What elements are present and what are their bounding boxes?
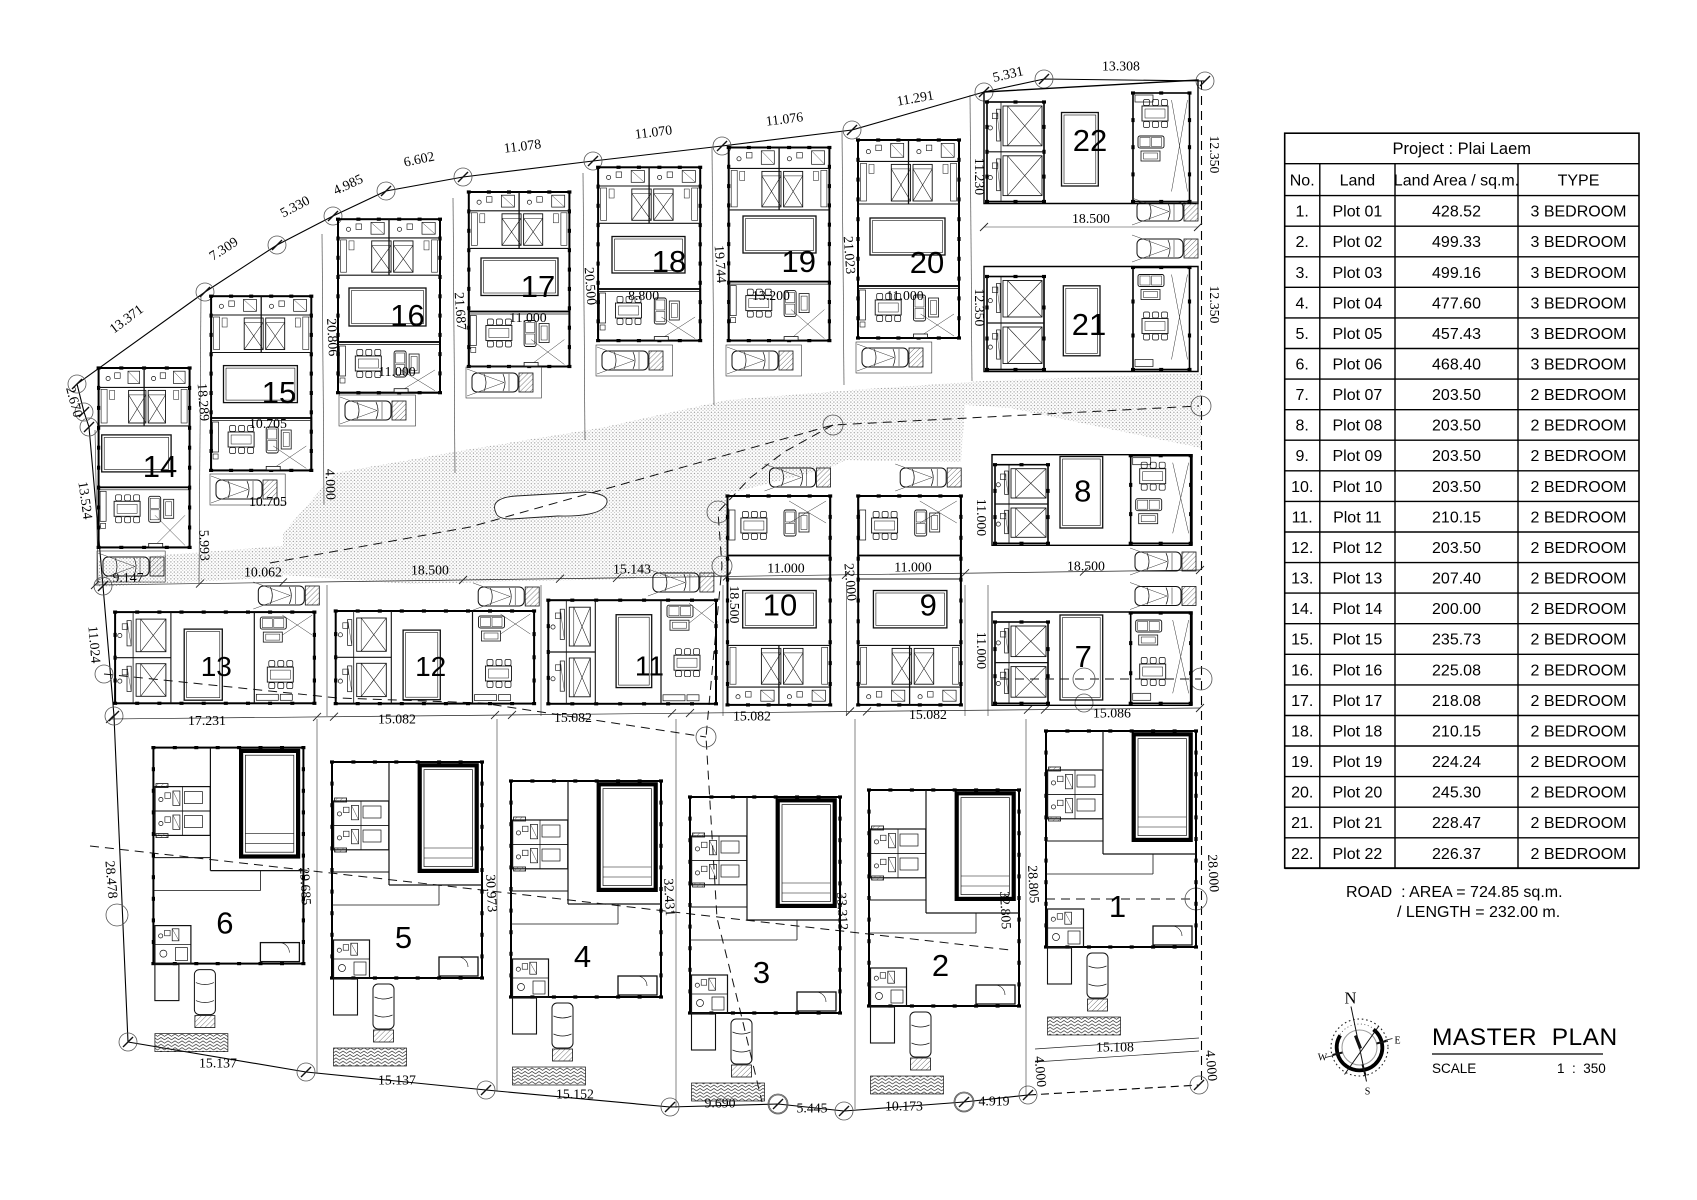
svg-text:200.00: 200.00	[1432, 601, 1481, 618]
svg-text:19.: 19.	[1291, 754, 1313, 771]
svg-text:428.52: 428.52	[1432, 204, 1481, 221]
svg-text:226.37: 226.37	[1432, 846, 1481, 863]
svg-text:2 BEDROOM: 2 BEDROOM	[1530, 601, 1626, 618]
svg-text:11.000: 11.000	[974, 632, 989, 670]
svg-text:21: 21	[1072, 307, 1106, 342]
svg-text:207.40: 207.40	[1432, 571, 1481, 588]
svg-text:11.000: 11.000	[767, 561, 805, 576]
svg-text:32.805: 32.805	[997, 891, 1014, 930]
svg-text:18: 18	[652, 244, 686, 279]
svg-text:20.500: 20.500	[582, 267, 600, 306]
svg-text:18.289: 18.289	[195, 383, 213, 422]
svg-text:3 BEDROOM: 3 BEDROOM	[1530, 326, 1626, 343]
svg-text:Plot 14: Plot 14	[1332, 601, 1382, 618]
svg-text:6: 6	[216, 906, 233, 941]
svg-text:Plot 15: Plot 15	[1332, 632, 1382, 649]
svg-text:22: 22	[1073, 123, 1107, 158]
svg-text:20: 20	[910, 245, 944, 280]
svg-text:12.350: 12.350	[972, 289, 987, 327]
svg-text:2 BEDROOM: 2 BEDROOM	[1530, 571, 1626, 588]
svg-text:477.60: 477.60	[1432, 295, 1481, 312]
svg-text:21.687: 21.687	[452, 292, 470, 331]
svg-text:Plot 01: Plot 01	[1332, 204, 1382, 221]
svg-text:3 BEDROOM: 3 BEDROOM	[1530, 295, 1626, 312]
svg-text:Plot 03: Plot 03	[1332, 265, 1382, 282]
svg-text:/ LENGTH = 232.00 m.: / LENGTH = 232.00 m.	[1397, 904, 1560, 921]
svg-text:W: W	[1318, 1053, 1328, 1064]
svg-text:E: E	[1394, 1036, 1400, 1047]
svg-text:Plot 02: Plot 02	[1332, 234, 1382, 251]
svg-text:Plot 11: Plot 11	[1333, 509, 1382, 526]
svg-text:203.50: 203.50	[1432, 479, 1481, 496]
svg-text:17.: 17.	[1291, 693, 1313, 710]
svg-text:9.147: 9.147	[112, 570, 143, 585]
svg-text:8.: 8.	[1296, 418, 1309, 435]
svg-text:5.445: 5.445	[796, 1101, 827, 1116]
svg-text:2 BEDROOM: 2 BEDROOM	[1530, 693, 1626, 710]
svg-text:2 BEDROOM: 2 BEDROOM	[1530, 785, 1626, 802]
svg-text:30.973: 30.973	[483, 874, 500, 913]
svg-text:3 BEDROOM: 3 BEDROOM	[1530, 357, 1626, 374]
svg-text:Plot 17: Plot 17	[1332, 693, 1382, 710]
svg-text:29.685: 29.685	[297, 867, 314, 906]
svg-text:17.231: 17.231	[188, 713, 226, 728]
svg-text:4.: 4.	[1296, 295, 1309, 312]
svg-text:ROAD : AREA = 724.85 sq.m.: ROAD : AREA = 724.85 sq.m.	[1346, 884, 1563, 901]
svg-text:Plot 05: Plot 05	[1332, 326, 1382, 343]
svg-text:2 BEDROOM: 2 BEDROOM	[1530, 540, 1626, 557]
svg-text:2 BEDROOM: 2 BEDROOM	[1530, 509, 1626, 526]
svg-text:11.000: 11.000	[509, 310, 547, 325]
svg-text:10.705: 10.705	[249, 494, 287, 509]
svg-text:8.800: 8.800	[628, 288, 659, 303]
svg-text:13.308: 13.308	[1102, 59, 1140, 74]
svg-text:16.: 16.	[1291, 662, 1313, 679]
svg-text:8: 8	[1074, 474, 1091, 509]
svg-text:Plot 22: Plot 22	[1332, 846, 1382, 863]
svg-text:Plot 07: Plot 07	[1332, 387, 1382, 404]
svg-text:10.173: 10.173	[885, 1099, 923, 1114]
svg-text:12.350: 12.350	[1207, 136, 1222, 174]
svg-text:210.15: 210.15	[1432, 509, 1481, 526]
svg-text:203.50: 203.50	[1432, 448, 1481, 465]
svg-text:2 BEDROOM: 2 BEDROOM	[1530, 662, 1626, 679]
svg-text:22.: 22.	[1291, 846, 1313, 863]
svg-text:5.993: 5.993	[196, 530, 212, 562]
svg-text:Plot 16: Plot 16	[1332, 662, 1382, 679]
svg-text:10.: 10.	[1291, 479, 1313, 496]
svg-text:2 BEDROOM: 2 BEDROOM	[1530, 815, 1626, 832]
svg-text:S: S	[1365, 1087, 1371, 1098]
svg-text:No.: No.	[1290, 173, 1315, 190]
svg-text:Land Area / sq.m.: Land Area / sq.m.	[1394, 173, 1519, 190]
svg-text:18.500: 18.500	[1067, 559, 1105, 574]
svg-text:7: 7	[1075, 639, 1092, 674]
svg-text:4.000: 4.000	[1203, 1049, 1221, 1081]
svg-text:2: 2	[932, 948, 949, 983]
svg-text:TYPE: TYPE	[1558, 173, 1600, 190]
svg-text:15.108: 15.108	[1096, 1040, 1134, 1055]
svg-text:2.: 2.	[1296, 234, 1309, 251]
svg-text:3: 3	[753, 955, 770, 990]
svg-text:13.: 13.	[1291, 571, 1313, 588]
svg-text:15.082: 15.082	[909, 707, 947, 722]
svg-text:11.000: 11.000	[974, 499, 989, 537]
svg-text:18.: 18.	[1291, 724, 1313, 741]
svg-text:10: 10	[763, 588, 797, 623]
svg-text:17: 17	[521, 269, 555, 304]
svg-text:15: 15	[262, 375, 296, 410]
svg-text:Plot 09: Plot 09	[1332, 448, 1382, 465]
svg-text:5.: 5.	[1296, 326, 1309, 343]
svg-text:Plot 19: Plot 19	[1332, 754, 1382, 771]
svg-text:15.: 15.	[1291, 632, 1313, 649]
svg-text:Plot 08: Plot 08	[1332, 418, 1382, 435]
svg-text:16: 16	[390, 298, 424, 333]
svg-text:Plot 04: Plot 04	[1332, 295, 1382, 312]
svg-text:N: N	[1345, 989, 1357, 1008]
svg-text:1 : 350: 1 : 350	[1557, 1061, 1606, 1076]
svg-text:2 BEDROOM: 2 BEDROOM	[1530, 448, 1626, 465]
svg-text:2 BEDROOM: 2 BEDROOM	[1530, 846, 1626, 863]
svg-text:2 BEDROOM: 2 BEDROOM	[1530, 387, 1626, 404]
svg-text:225.08: 225.08	[1432, 662, 1481, 679]
svg-text:4.919: 4.919	[978, 1094, 1009, 1109]
svg-text:1.: 1.	[1296, 204, 1309, 221]
svg-text:15.086: 15.086	[1093, 706, 1131, 721]
svg-text:18.500: 18.500	[1072, 211, 1110, 226]
svg-text:3 BEDROOM: 3 BEDROOM	[1530, 234, 1626, 251]
svg-text:MASTER PLAN: MASTER PLAN	[1432, 1024, 1618, 1051]
svg-text:SCALE: SCALE	[1432, 1061, 1476, 1076]
svg-text:15.137: 15.137	[378, 1073, 416, 1088]
svg-text:12.: 12.	[1291, 540, 1313, 557]
svg-text:14: 14	[143, 449, 177, 484]
svg-text:Plot 13: Plot 13	[1332, 571, 1382, 588]
svg-text:11.230: 11.230	[972, 158, 987, 196]
svg-text:2 BEDROOM: 2 BEDROOM	[1530, 724, 1626, 741]
svg-text:9: 9	[920, 588, 937, 623]
svg-text:Plot 20: Plot 20	[1332, 785, 1382, 802]
svg-text:28.000: 28.000	[1205, 854, 1222, 893]
svg-text:6.: 6.	[1296, 357, 1309, 374]
svg-text:9.: 9.	[1296, 448, 1309, 465]
svg-text:4.000: 4.000	[1032, 1055, 1050, 1087]
svg-text:14.: 14.	[1291, 601, 1313, 618]
svg-text:18.500: 18.500	[727, 586, 742, 624]
svg-text:203.50: 203.50	[1432, 418, 1481, 435]
svg-text:11.000: 11.000	[378, 364, 416, 379]
svg-text:203.50: 203.50	[1432, 540, 1481, 557]
svg-text:15.082: 15.082	[378, 712, 416, 727]
svg-text:499.16: 499.16	[1432, 265, 1481, 282]
svg-text:499.33: 499.33	[1432, 234, 1481, 251]
svg-text:11: 11	[635, 651, 664, 682]
svg-text:Project : Plai Laem: Project : Plai Laem	[1393, 140, 1531, 158]
svg-text:7.: 7.	[1296, 387, 1309, 404]
svg-text:20.: 20.	[1291, 785, 1313, 802]
svg-text:210.15: 210.15	[1432, 724, 1481, 741]
svg-text:Land: Land	[1340, 173, 1376, 190]
svg-text:3.: 3.	[1296, 265, 1309, 282]
svg-text:Plot 12: Plot 12	[1332, 540, 1382, 557]
svg-text:Plot 18: Plot 18	[1332, 724, 1382, 741]
svg-text:4.000: 4.000	[322, 469, 338, 501]
svg-text:203.50: 203.50	[1432, 387, 1481, 404]
svg-text:18.500: 18.500	[411, 563, 449, 578]
svg-text:19.744: 19.744	[712, 245, 730, 284]
svg-text:28.805: 28.805	[1025, 865, 1042, 904]
svg-text:21.: 21.	[1291, 815, 1313, 832]
svg-text:12.350: 12.350	[1207, 286, 1222, 324]
svg-text:2 BEDROOM: 2 BEDROOM	[1530, 754, 1626, 771]
svg-text:2 BEDROOM: 2 BEDROOM	[1530, 632, 1626, 649]
svg-text:15.082: 15.082	[733, 709, 771, 724]
svg-text:10.062: 10.062	[244, 565, 282, 580]
svg-text:3 BEDROOM: 3 BEDROOM	[1530, 204, 1626, 221]
svg-text:Plot 10: Plot 10	[1332, 479, 1382, 496]
svg-text:12: 12	[415, 651, 446, 682]
svg-text:3 BEDROOM: 3 BEDROOM	[1530, 265, 1626, 282]
svg-text:15.082: 15.082	[554, 710, 592, 725]
svg-text:11.000: 11.000	[894, 560, 932, 575]
svg-text:13.200: 13.200	[752, 288, 790, 303]
svg-text:Plot 06: Plot 06	[1332, 357, 1382, 374]
svg-text:11.000: 11.000	[886, 288, 924, 303]
svg-text:235.73: 235.73	[1432, 632, 1481, 649]
svg-text:5: 5	[395, 920, 412, 955]
svg-text:15.143: 15.143	[613, 562, 651, 577]
svg-text:457.43: 457.43	[1432, 326, 1481, 343]
svg-text:15.152: 15.152	[556, 1087, 594, 1102]
svg-text:1: 1	[1109, 889, 1126, 924]
svg-text:Plot 21: Plot 21	[1332, 815, 1382, 832]
svg-text:228.47: 228.47	[1432, 815, 1481, 832]
svg-text:10.705: 10.705	[249, 416, 287, 431]
svg-text:218.08: 218.08	[1432, 693, 1481, 710]
svg-text:224.24: 224.24	[1432, 754, 1481, 771]
svg-text:13: 13	[201, 651, 232, 682]
svg-text:15.137: 15.137	[199, 1056, 237, 1071]
svg-text:245.30: 245.30	[1432, 785, 1481, 802]
svg-text:19: 19	[782, 244, 816, 279]
svg-text:4: 4	[574, 939, 591, 974]
svg-text:11.: 11.	[1292, 509, 1313, 526]
svg-text:2 BEDROOM: 2 BEDROOM	[1530, 418, 1626, 435]
svg-text:2 BEDROOM: 2 BEDROOM	[1530, 479, 1626, 496]
svg-text:468.40: 468.40	[1432, 357, 1481, 374]
